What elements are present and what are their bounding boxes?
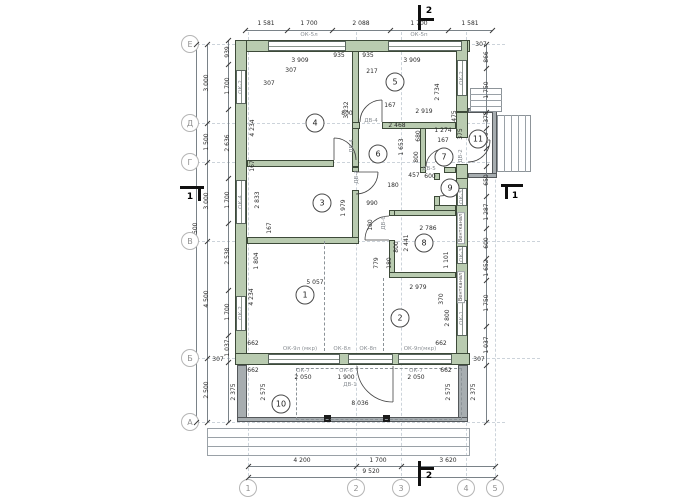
dim-label: 307 <box>285 68 296 74</box>
dim-label: 1 750 <box>484 81 490 98</box>
stair-step <box>504 115 505 172</box>
dim-line-left-axes <box>207 44 208 422</box>
room-number-badge: 2 <box>391 309 410 328</box>
dim-label: 8 036 <box>351 401 368 407</box>
room-number-badge: 4 <box>306 114 325 133</box>
section-mark-1-right-flag <box>505 187 508 199</box>
wall-room4-bottom <box>247 160 334 167</box>
dim-line-bottom2 <box>248 477 495 478</box>
dim-label: 5 057 <box>306 280 323 286</box>
dim-label: 2 050 <box>294 375 311 381</box>
tag-label: ДВ-4 <box>364 118 378 124</box>
tag-label: ОК-1 <box>459 311 465 325</box>
room-number-badge: 8 <box>415 234 434 253</box>
axis-row-marker: Б <box>181 349 199 367</box>
wall-room7-bottom-b <box>444 167 456 173</box>
tag-label: ОК-8п <box>359 346 376 352</box>
floor-plan: 1 5811 7002 0881 7001 581ОК-5лОК-5п3073 … <box>0 0 697 502</box>
dim-label: 866 <box>484 51 490 62</box>
dim-label: 4 500 <box>204 290 210 307</box>
tag-label: ОК-3 <box>459 248 465 262</box>
section-mark-2-bottom-flag <box>421 467 434 470</box>
porch-step-line <box>207 437 470 438</box>
axis-row-marker: Д <box>181 114 199 132</box>
axis-col-marker: 5 <box>486 479 504 497</box>
dim-label: 779 <box>374 257 380 268</box>
beam-dashed-line <box>383 278 384 351</box>
porch-step-side <box>469 428 470 455</box>
dim-label: 457 <box>408 173 419 179</box>
dim-label: 167 <box>437 138 448 144</box>
tag-label: ОК-8л <box>333 346 350 352</box>
dim-label: 2 636 <box>225 134 231 151</box>
tag-label: ОК-2 <box>238 306 244 320</box>
dim-label: 662 <box>435 341 446 347</box>
section-number: 2 <box>426 6 432 16</box>
dim-label: 1 287 <box>484 203 490 220</box>
dim-label: 2 375 <box>471 383 477 400</box>
tag-label: ОК-9п(мкр) <box>404 346 437 352</box>
dim-label: 2 575 <box>261 383 267 400</box>
dim-label: 167 <box>267 222 273 233</box>
grid-line-row <box>182 162 505 163</box>
tag-label: ДВ-6 <box>381 216 387 230</box>
wall-room3-right-b <box>352 190 359 244</box>
grid-line-col <box>401 32 402 496</box>
grid-line-row <box>182 422 505 423</box>
dim-label: 939 <box>225 46 231 57</box>
dim-label: 2 575 <box>446 383 452 400</box>
dim-label: 662 <box>440 368 451 374</box>
tag-label: ДВ-4 <box>349 139 355 153</box>
dim-label: 1 274 <box>434 128 451 134</box>
dim-label: 307 <box>263 81 274 87</box>
section-number: 1 <box>512 191 518 201</box>
dim-label: 180 <box>387 257 393 268</box>
window-ok7-left <box>268 354 340 364</box>
tag-label: ОК-4 <box>238 195 244 209</box>
dim-label: 1 581 <box>257 21 274 27</box>
dim-label: 180 <box>387 183 398 189</box>
dim-label: 2 088 <box>352 21 369 27</box>
dim-label: 2 919 <box>415 109 432 115</box>
dim-label: 2 800 <box>445 309 451 326</box>
porch-step-side <box>207 428 208 455</box>
dim-label: 1 581 <box>461 21 478 27</box>
dim-label: 1 700 <box>225 191 231 208</box>
vent-channel-label: Вентканал <box>457 271 465 303</box>
tag-label: ОК-2 <box>459 71 465 85</box>
room-number-badge: 3 <box>313 194 332 213</box>
dim-label: 1 804 <box>254 252 260 269</box>
dim-label: 1 037 <box>225 339 231 356</box>
dim-label: 2 734 <box>435 83 441 100</box>
stair-step <box>525 115 526 172</box>
section-mark-2-bottom <box>418 461 421 486</box>
vent-channel-label: Вентканал <box>457 212 465 244</box>
dim-label: 2 468 <box>388 123 405 129</box>
dim-label: 1 700 <box>300 21 317 27</box>
dim-label: 4 200 <box>293 458 310 464</box>
dim-label: 600 <box>484 237 490 248</box>
tag-label: ОК-2 <box>238 80 244 94</box>
porch-step-line <box>207 455 470 456</box>
dim-label: 662 <box>247 341 258 347</box>
dim-label: 935 <box>362 53 373 59</box>
tag-label: ДВ-2 <box>458 149 464 163</box>
dim-label: 990 <box>366 201 377 207</box>
dim-label: 2 833 <box>255 191 261 208</box>
dim-label: 1 700 <box>225 303 231 320</box>
window-ok5p <box>388 41 462 51</box>
dim-label: 600 <box>424 174 435 180</box>
window-ok5l <box>268 41 346 51</box>
window-ok6-door-dv1 <box>348 354 393 364</box>
dim-label: 375 <box>458 128 464 139</box>
dim-label: 4 234 <box>250 119 256 136</box>
section-number: 2 <box>426 471 432 481</box>
door-swing-arcs <box>0 0 697 502</box>
room-number-badge: 11 <box>469 130 488 149</box>
dim-label: 4 234 <box>249 288 255 305</box>
axis-col-marker: 3 <box>392 479 410 497</box>
tag-label: ОК-3 <box>459 190 465 204</box>
dim-label: 1 652 <box>484 259 490 276</box>
dim-label: 9 520 <box>362 469 379 475</box>
axis-row-marker: В <box>181 232 199 250</box>
axis-col-marker: 1 <box>239 479 257 497</box>
wall-room9-bottom <box>434 205 456 211</box>
tag-label: ДВ-3 <box>354 170 360 184</box>
porch-step-line <box>207 428 470 429</box>
dim-label: 2 441 <box>404 234 410 251</box>
dim-label: 1 900 <box>337 375 354 381</box>
dim-label: 167 <box>384 103 395 109</box>
dim-label: 1 037 <box>484 336 490 353</box>
dim-label: 800 <box>394 241 400 252</box>
section-mark-1-left-flag <box>198 189 201 201</box>
dim-label: 307 <box>212 357 223 363</box>
tag-label: ОК-9л (мкр) <box>283 346 317 352</box>
axis-col-marker: 2 <box>347 479 365 497</box>
dim-label: 2 500 <box>204 381 210 398</box>
dim-label: 1 700 <box>369 458 386 464</box>
wall-room8-left-a <box>389 210 395 216</box>
stair-step <box>518 115 519 172</box>
dim-tick <box>490 28 496 34</box>
porch-step-line <box>207 446 470 447</box>
dim-label: 800 <box>341 111 352 117</box>
dim-label: 3 620 <box>439 458 456 464</box>
room-number-badge: 5 <box>386 73 405 92</box>
dim-label: 475 <box>452 110 458 121</box>
dim-label: 3 000 <box>204 74 210 91</box>
axis-col-marker: 4 <box>457 479 475 497</box>
dim-label: 3 909 <box>403 58 420 64</box>
dim-label: 1 101 <box>444 251 450 268</box>
dim-label: 2 786 <box>419 226 436 232</box>
dim-label: 1 700 <box>410 21 427 27</box>
room-number-badge: 10 <box>272 395 291 414</box>
dim-label: 1 750 <box>484 294 490 311</box>
dim-label: 1 500 <box>204 133 210 150</box>
dim-label: 680 <box>416 130 422 141</box>
porch-wall-left <box>237 365 247 422</box>
dim-label: 800 <box>414 151 420 162</box>
porch-roof-outline <box>296 368 462 420</box>
window-ok7-right <box>398 354 452 364</box>
dim-label: 935 <box>333 53 344 59</box>
dim-label: 2 979 <box>409 285 426 291</box>
room-number-badge: 1 <box>296 286 315 305</box>
tag-label: ОК-5л <box>300 32 317 38</box>
room-number-badge: 9 <box>441 179 460 198</box>
dim-label: 3 000 <box>204 192 210 209</box>
room-number-badge: 7 <box>435 148 454 167</box>
dim-label: 1 700 <box>225 77 231 94</box>
room-number-badge: 6 <box>369 145 388 164</box>
beam-dashed-line <box>324 241 325 351</box>
dim-label: 650 <box>484 174 490 185</box>
tag-label: ДВ-5 <box>422 166 436 172</box>
dim-label: 2 050 <box>407 375 424 381</box>
dim-label: 180 <box>368 219 374 230</box>
stair-step <box>511 115 512 172</box>
wall-room8-bottom <box>389 272 456 278</box>
dim-label: 1 653 <box>399 138 405 155</box>
dim-label: 307 <box>473 357 484 363</box>
dim-label: 2 375 <box>231 383 237 400</box>
dim-label: 1 979 <box>341 199 347 216</box>
dim-line-top <box>245 30 492 31</box>
tag-label: ОК-5п <box>410 32 427 38</box>
dim-line-left-inner <box>228 40 229 422</box>
wall-room5-bottom-a <box>352 122 360 129</box>
dim-label: 3 909 <box>291 58 308 64</box>
dim-label: 662 <box>247 368 258 374</box>
dim-label: 217 <box>366 69 377 75</box>
wall-room3-bottom <box>247 237 359 244</box>
dim-label: 2 538 <box>225 247 231 264</box>
dim-label: 167 <box>250 160 256 171</box>
axis-row-marker: Г <box>181 153 199 171</box>
dim-line-bottom1 <box>248 466 495 467</box>
grid-line-col <box>248 32 249 496</box>
dim-label: 370 <box>439 293 445 304</box>
tag-label: ДВ-1 <box>343 382 357 388</box>
section-number: 1 <box>187 192 193 202</box>
